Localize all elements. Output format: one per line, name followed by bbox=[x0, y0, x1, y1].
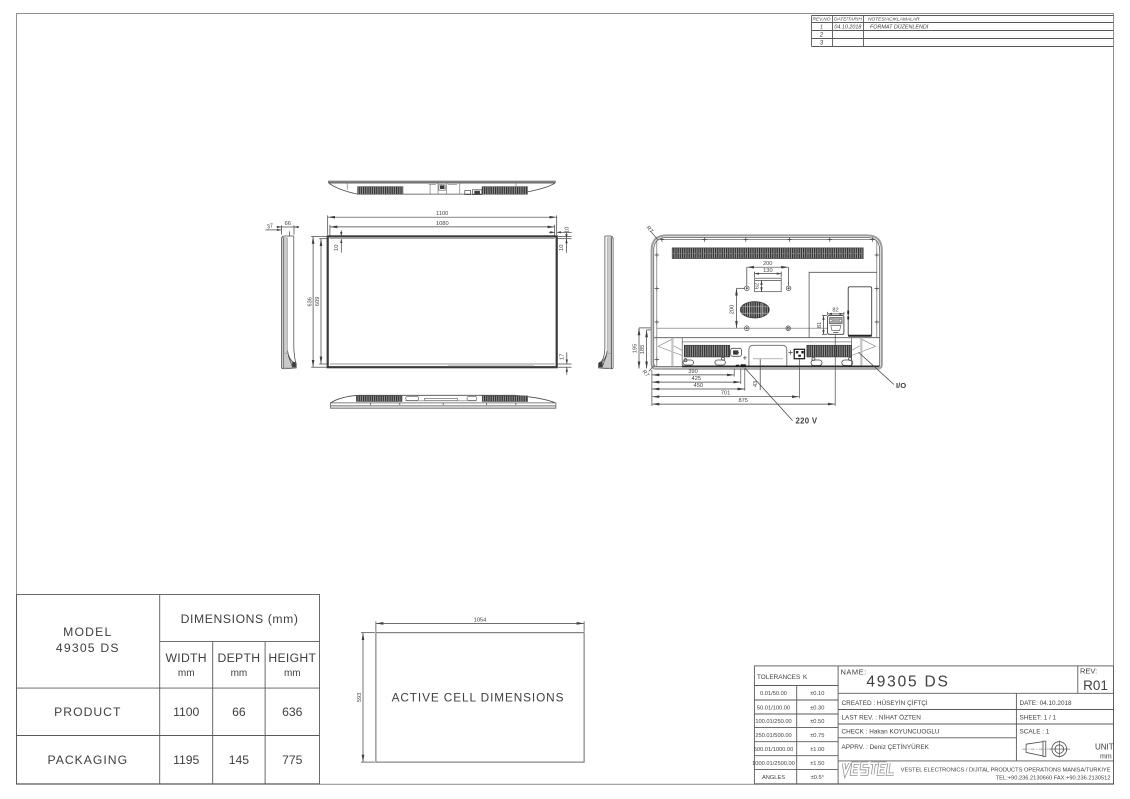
svg-text:±0.30: ±0.30 bbox=[810, 705, 824, 711]
svg-text:49305 DS: 49305 DS bbox=[56, 641, 120, 655]
svg-text:CHECK : Hakan KOYUNCUOGLU: CHECK : Hakan KOYUNCUOGLU bbox=[842, 729, 940, 736]
svg-text:±0.50: ±0.50 bbox=[810, 719, 824, 725]
svg-text:775: 775 bbox=[282, 753, 303, 767]
svg-text:49305 DS: 49305 DS bbox=[866, 674, 949, 691]
svg-text:ANGLES: ANGLES bbox=[762, 775, 785, 781]
svg-text:CREATED : HÜSEYİN ÇİFTÇİ: CREATED : HÜSEYİN ÇİFTÇİ bbox=[842, 698, 928, 707]
svg-text:875: 875 bbox=[738, 398, 748, 404]
svg-text:mm: mm bbox=[231, 668, 248, 679]
svg-text:10: 10 bbox=[559, 245, 565, 251]
svg-text:WIDTH: WIDTH bbox=[165, 651, 206, 665]
svg-text:VESTEL ELECTRONICS / DIJITAL P: VESTEL ELECTRONICS / DIJITAL PRODUCTS OP… bbox=[901, 768, 1111, 774]
svg-text:0.01/50.00: 0.01/50.00 bbox=[760, 691, 787, 697]
svg-text:220 V: 220 V bbox=[796, 417, 818, 426]
svg-text:NOTES/ACIKLAMALAR: NOTES/ACIKLAMALAR bbox=[868, 17, 920, 23]
svg-text:R01: R01 bbox=[1083, 678, 1108, 693]
svg-text:10: 10 bbox=[565, 227, 571, 233]
svg-text:66: 66 bbox=[232, 705, 246, 719]
svg-text:1080: 1080 bbox=[436, 221, 449, 227]
svg-text:04.10.2018: 04.10.2018 bbox=[834, 25, 861, 31]
svg-text:1100: 1100 bbox=[173, 705, 199, 719]
svg-text:3: 3 bbox=[820, 40, 824, 47]
svg-text:636: 636 bbox=[307, 297, 313, 307]
svg-text:mm: mm bbox=[284, 668, 301, 679]
svg-text:500.01/1000.00: 500.01/1000.00 bbox=[754, 747, 794, 753]
svg-text:250.01/500.00: 250.01/500.00 bbox=[755, 733, 791, 739]
svg-text:FORMAT DÜZENLENDİ: FORMAT DÜZENLENDİ bbox=[870, 24, 929, 31]
svg-text:450: 450 bbox=[694, 383, 704, 389]
svg-text:APPRV. : Deniz ÇETİNYÜREK: APPRV. : Deniz ÇETİNYÜREK bbox=[842, 742, 930, 751]
svg-text:50.01/100.00: 50.01/100.00 bbox=[757, 705, 790, 711]
svg-text:TEL:+90.236.2130660 FAX:+90.23: TEL:+90.236.2130660 FAX:+90.236.2130512 bbox=[996, 776, 1111, 782]
svg-text:mm: mm bbox=[1100, 754, 1112, 761]
svg-text:390: 390 bbox=[688, 369, 698, 375]
svg-text:SCALE : 1: SCALE : 1 bbox=[1020, 729, 1050, 736]
svg-text:130: 130 bbox=[763, 268, 773, 274]
svg-text:200: 200 bbox=[729, 305, 735, 315]
svg-text:DIMENSIONS (mm): DIMENSIONS (mm) bbox=[181, 612, 299, 626]
svg-text:593: 593 bbox=[357, 693, 363, 703]
svg-text:185: 185 bbox=[640, 345, 646, 355]
svg-text:REV:: REV: bbox=[1080, 667, 1097, 676]
svg-text:HEIGHT: HEIGHT bbox=[268, 651, 316, 665]
svg-text:ACTIVE CELL DIMENSIONS: ACTIVE CELL DIMENSIONS bbox=[392, 691, 565, 705]
svg-text:82: 82 bbox=[832, 308, 838, 314]
svg-text:1100: 1100 bbox=[436, 211, 448, 217]
svg-text:701: 701 bbox=[721, 391, 731, 397]
svg-text:609: 609 bbox=[315, 297, 321, 307]
svg-text:PRODUCT: PRODUCT bbox=[54, 705, 121, 719]
svg-text:2: 2 bbox=[819, 32, 824, 39]
svg-text:1000.01/2500.00: 1000.01/2500.00 bbox=[752, 761, 795, 767]
svg-text:195: 195 bbox=[632, 344, 638, 354]
svg-text:636: 636 bbox=[282, 705, 303, 719]
svg-text:LAST REV. : NİHAT ÖZTEN: LAST REV. : NİHAT ÖZTEN bbox=[842, 713, 922, 722]
svg-text:1195: 1195 bbox=[173, 753, 199, 767]
svg-text:±0.5°: ±0.5° bbox=[811, 775, 824, 781]
svg-text:62: 62 bbox=[754, 283, 760, 289]
svg-text:UNIT: UNIT bbox=[1095, 743, 1114, 752]
svg-text:145: 145 bbox=[229, 753, 250, 767]
svg-text:1054: 1054 bbox=[474, 617, 487, 623]
svg-text:mm: mm bbox=[178, 668, 195, 679]
svg-text:MODEL: MODEL bbox=[63, 625, 112, 639]
svg-text:±0.10: ±0.10 bbox=[810, 691, 824, 697]
svg-text:±1.00: ±1.00 bbox=[810, 747, 824, 753]
svg-text:REV.NO: REV.NO bbox=[812, 17, 830, 23]
svg-text:10: 10 bbox=[334, 245, 340, 251]
svg-text:SHEET: 1 / 1: SHEET: 1 / 1 bbox=[1020, 715, 1057, 722]
svg-text:DEPTH: DEPTH bbox=[217, 651, 260, 665]
svg-text:I/O: I/O bbox=[896, 381, 906, 390]
svg-text:DATE: 04.10.2018: DATE: 04.10.2018 bbox=[1020, 700, 1073, 707]
svg-text:±0.75: ±0.75 bbox=[810, 733, 824, 739]
svg-text:43: 43 bbox=[753, 381, 759, 387]
svg-text:425: 425 bbox=[692, 376, 702, 382]
svg-text:PACKAGING: PACKAGING bbox=[48, 753, 129, 767]
svg-text:81: 81 bbox=[817, 322, 823, 328]
svg-text:NAME:: NAME: bbox=[841, 668, 867, 677]
svg-text:66: 66 bbox=[285, 221, 291, 227]
svg-text:100.01/250.00: 100.01/250.00 bbox=[755, 719, 791, 725]
svg-text:TOLERANCES: TOLERANCES bbox=[757, 674, 800, 681]
svg-text:K: K bbox=[803, 674, 808, 681]
svg-text:17: 17 bbox=[560, 354, 566, 360]
svg-text:DATE/TARIH: DATE/TARIH bbox=[834, 17, 862, 23]
svg-text:1: 1 bbox=[820, 25, 823, 31]
svg-text:200: 200 bbox=[763, 261, 773, 267]
svg-text:±1.50: ±1.50 bbox=[810, 761, 824, 767]
